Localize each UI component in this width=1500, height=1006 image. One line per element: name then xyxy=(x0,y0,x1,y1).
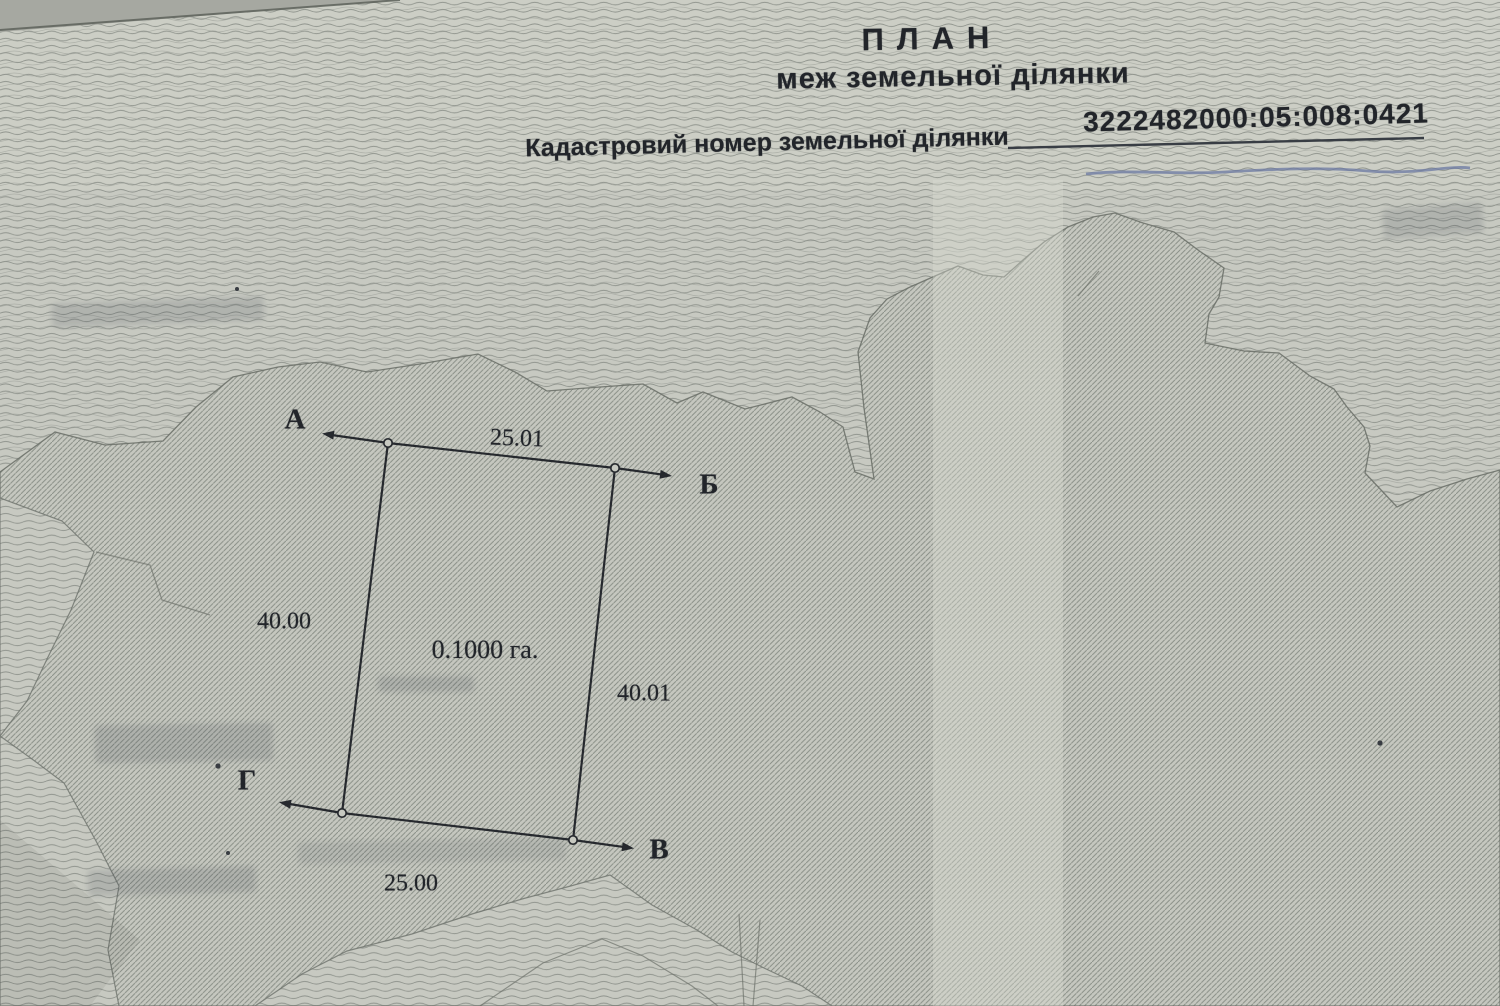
scanned-land-plan-document: ПЛАН меж земельної ділянки Кадастровий н… xyxy=(0,0,1500,1006)
point-label-b: Б xyxy=(699,469,718,502)
point-label-v: В xyxy=(649,834,668,867)
vertex-b xyxy=(611,464,619,472)
length-right: 40.01 xyxy=(617,681,671,708)
ghost-text-artifact xyxy=(378,676,474,692)
page-title: ПЛАН xyxy=(861,20,1002,58)
vertex-g xyxy=(338,809,346,817)
length-bottom: 25.00 xyxy=(384,871,438,898)
point-label-g: Г xyxy=(238,765,256,798)
page-subtitle: меж земельної ділянки xyxy=(776,57,1130,96)
ghost-text-artifact xyxy=(95,722,274,763)
area-label: 0.1000 га. xyxy=(432,635,539,665)
ghost-text-artifact xyxy=(88,866,257,896)
length-top: 25.01 xyxy=(490,425,545,454)
vertex-a xyxy=(384,439,392,447)
ghost-text-artifact xyxy=(298,838,566,865)
vertex-v xyxy=(569,836,577,844)
length-left: 40.00 xyxy=(257,609,311,636)
point-label-a: А xyxy=(285,404,306,437)
